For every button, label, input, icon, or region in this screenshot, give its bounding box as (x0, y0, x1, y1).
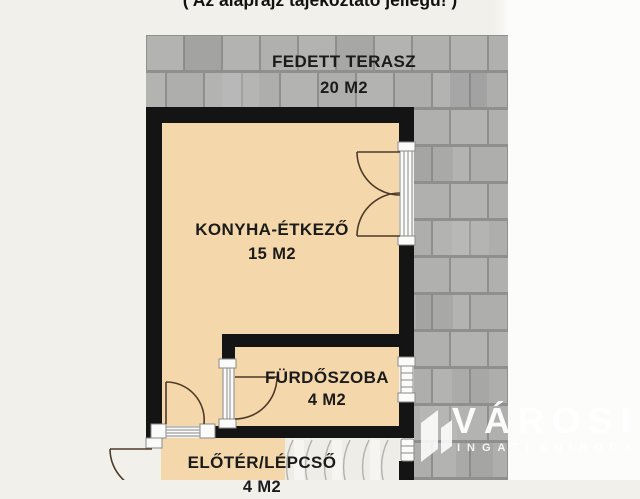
room-label-kitchen: KONYHA-ÉTKEZŐ 15 M2 (195, 218, 348, 266)
watermark-subtitle: INGATLANIRODA (457, 442, 639, 454)
disclaimer-note: ( Az alaprajz tájékoztató jellegű! ) (0, 0, 640, 11)
room-name: FÜRDŐSZOBA (265, 366, 389, 389)
room-area: 4 M2 (265, 389, 389, 412)
room-area: 15 M2 (195, 242, 348, 266)
room-label-hall: ELŐTÉR/LÉPCSŐ 4 M2 (188, 451, 337, 499)
room-name: KONYHA-ÉTKEZŐ (195, 218, 348, 242)
watermark-brand: VÁROSI (452, 403, 638, 439)
floor-plan: ( Az alaprajz tájékoztató jellegű! ) FED… (0, 0, 640, 480)
room-label-terrace: FEDETT TERASZ 20 M2 (272, 48, 416, 102)
room-label-bathroom: FÜRDŐSZOBA 4 M2 (265, 366, 389, 412)
room-name: ELŐTÉR/LÉPCSŐ (188, 451, 337, 475)
room-area: 4 M2 (188, 475, 337, 499)
room-area: 20 M2 (272, 75, 416, 102)
room-name: FEDETT TERASZ (272, 48, 416, 75)
